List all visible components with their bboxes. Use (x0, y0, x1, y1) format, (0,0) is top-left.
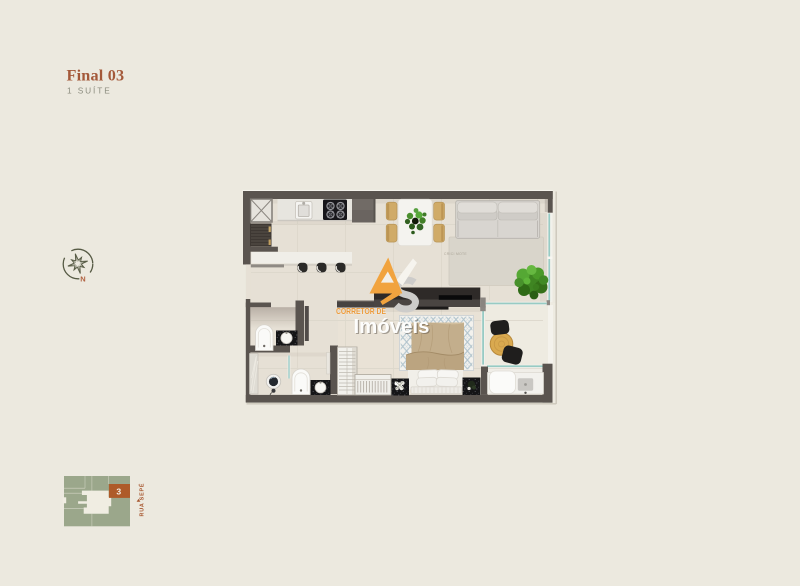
svg-text:Imóveis: Imóveis (354, 316, 430, 338)
svg-text:N: N (80, 275, 85, 284)
svg-text:3: 3 (116, 487, 121, 497)
svg-text:1 SUÍTE: 1 SUÍTE (67, 86, 112, 96)
svg-text:CORRETOR DE: CORRETOR DE (336, 306, 386, 316)
svg-text:CRICI MOTE: CRICI MOTE (444, 252, 467, 256)
svg-text:Final 03: Final 03 (67, 67, 125, 85)
